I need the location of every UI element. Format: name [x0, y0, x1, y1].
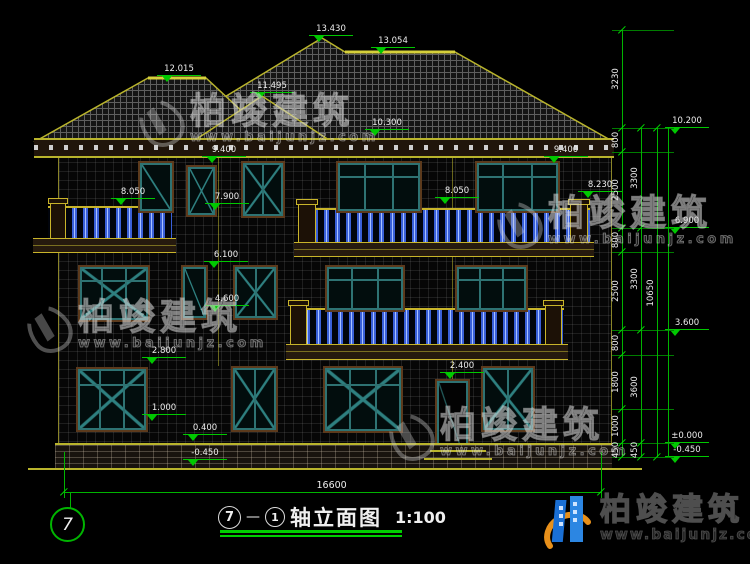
- balcony-slab-2f: [286, 344, 568, 360]
- dim-chain-line: [622, 30, 623, 457]
- axis-leader-line: [218, 156, 219, 366]
- dim-chain-value: 800: [611, 334, 621, 350]
- dim-chain-value: 2500: [611, 280, 621, 302]
- window: [183, 267, 206, 318]
- elevation-drawing-canvas: 13.43013.05412.01511.49510.3009.4009.400…: [0, 0, 750, 564]
- axis-dash: —: [246, 509, 260, 525]
- brand-block: 柏竣建筑 www.baijunjz.com: [540, 494, 750, 554]
- dim-chain-value: 450: [611, 442, 621, 458]
- window: [233, 368, 276, 430]
- title-scale: 1:100: [395, 508, 446, 527]
- balcony-railing-3f-left: [48, 206, 172, 242]
- ground-line: [28, 468, 642, 470]
- dim-chain-value: 3230: [611, 68, 621, 90]
- balcony-railing-2f: [292, 308, 564, 346]
- dim-chain-value: 1000: [611, 415, 621, 437]
- eave-fascia: [34, 138, 614, 158]
- axis-circle-start: 7: [218, 506, 241, 529]
- brand-name: 柏竣建筑: [600, 494, 750, 527]
- balcony-railing-3f-right: [300, 208, 590, 244]
- dim-chain-value: 1800: [611, 371, 621, 393]
- balcony-post: [545, 304, 562, 345]
- balcony-post: [570, 203, 588, 244]
- balcony-post: [50, 202, 66, 242]
- window: [78, 369, 146, 430]
- axis-bubble-leader: [70, 492, 71, 508]
- balcony-slab-3f-right: [294, 242, 594, 257]
- window: [457, 267, 526, 310]
- dim-chain-value: 10650: [646, 279, 656, 306]
- window: [235, 267, 276, 318]
- dim-chain-line: [641, 128, 642, 457]
- dim-chain-value: 3300: [630, 167, 640, 189]
- step-line: [424, 458, 492, 460]
- window: [477, 163, 558, 211]
- window: [325, 368, 401, 431]
- dim-chain-value: 3600: [630, 376, 640, 398]
- window: [188, 167, 215, 215]
- bottom-dim-line: [64, 492, 601, 493]
- balcony-slab-3f-left: [33, 238, 176, 253]
- plinth: [55, 443, 612, 470]
- balcony-post: [290, 304, 307, 345]
- elevation-vline: [668, 128, 669, 457]
- step-line: [430, 450, 486, 452]
- window: [327, 267, 403, 310]
- bottom-dim-value: 16600: [317, 480, 347, 491]
- dim-chain-line: [657, 128, 658, 457]
- drawing-title: 7 — 1 轴立面图 1:100: [218, 502, 446, 532]
- window: [140, 163, 172, 211]
- title-underline: [220, 530, 402, 533]
- balcony-post: [298, 203, 316, 244]
- brand-url: www.baijunjz.com: [600, 527, 750, 543]
- dim-chain-value: 800: [611, 232, 621, 248]
- dim-chain-value: 2500: [611, 179, 621, 201]
- dim-chain-value: 450: [630, 442, 640, 458]
- dim-chain-value: 3300: [630, 268, 640, 290]
- axis-circle-end: 1: [265, 507, 285, 527]
- brand-logo-icon: [540, 494, 592, 554]
- title-underline: [220, 535, 402, 537]
- window: [80, 267, 148, 320]
- window: [338, 163, 420, 211]
- window: [243, 163, 283, 216]
- axis-bubble: 7: [50, 507, 85, 542]
- window: [483, 368, 533, 430]
- title-text: 轴立面图: [290, 502, 382, 532]
- dim-chain-value: 800: [611, 132, 621, 148]
